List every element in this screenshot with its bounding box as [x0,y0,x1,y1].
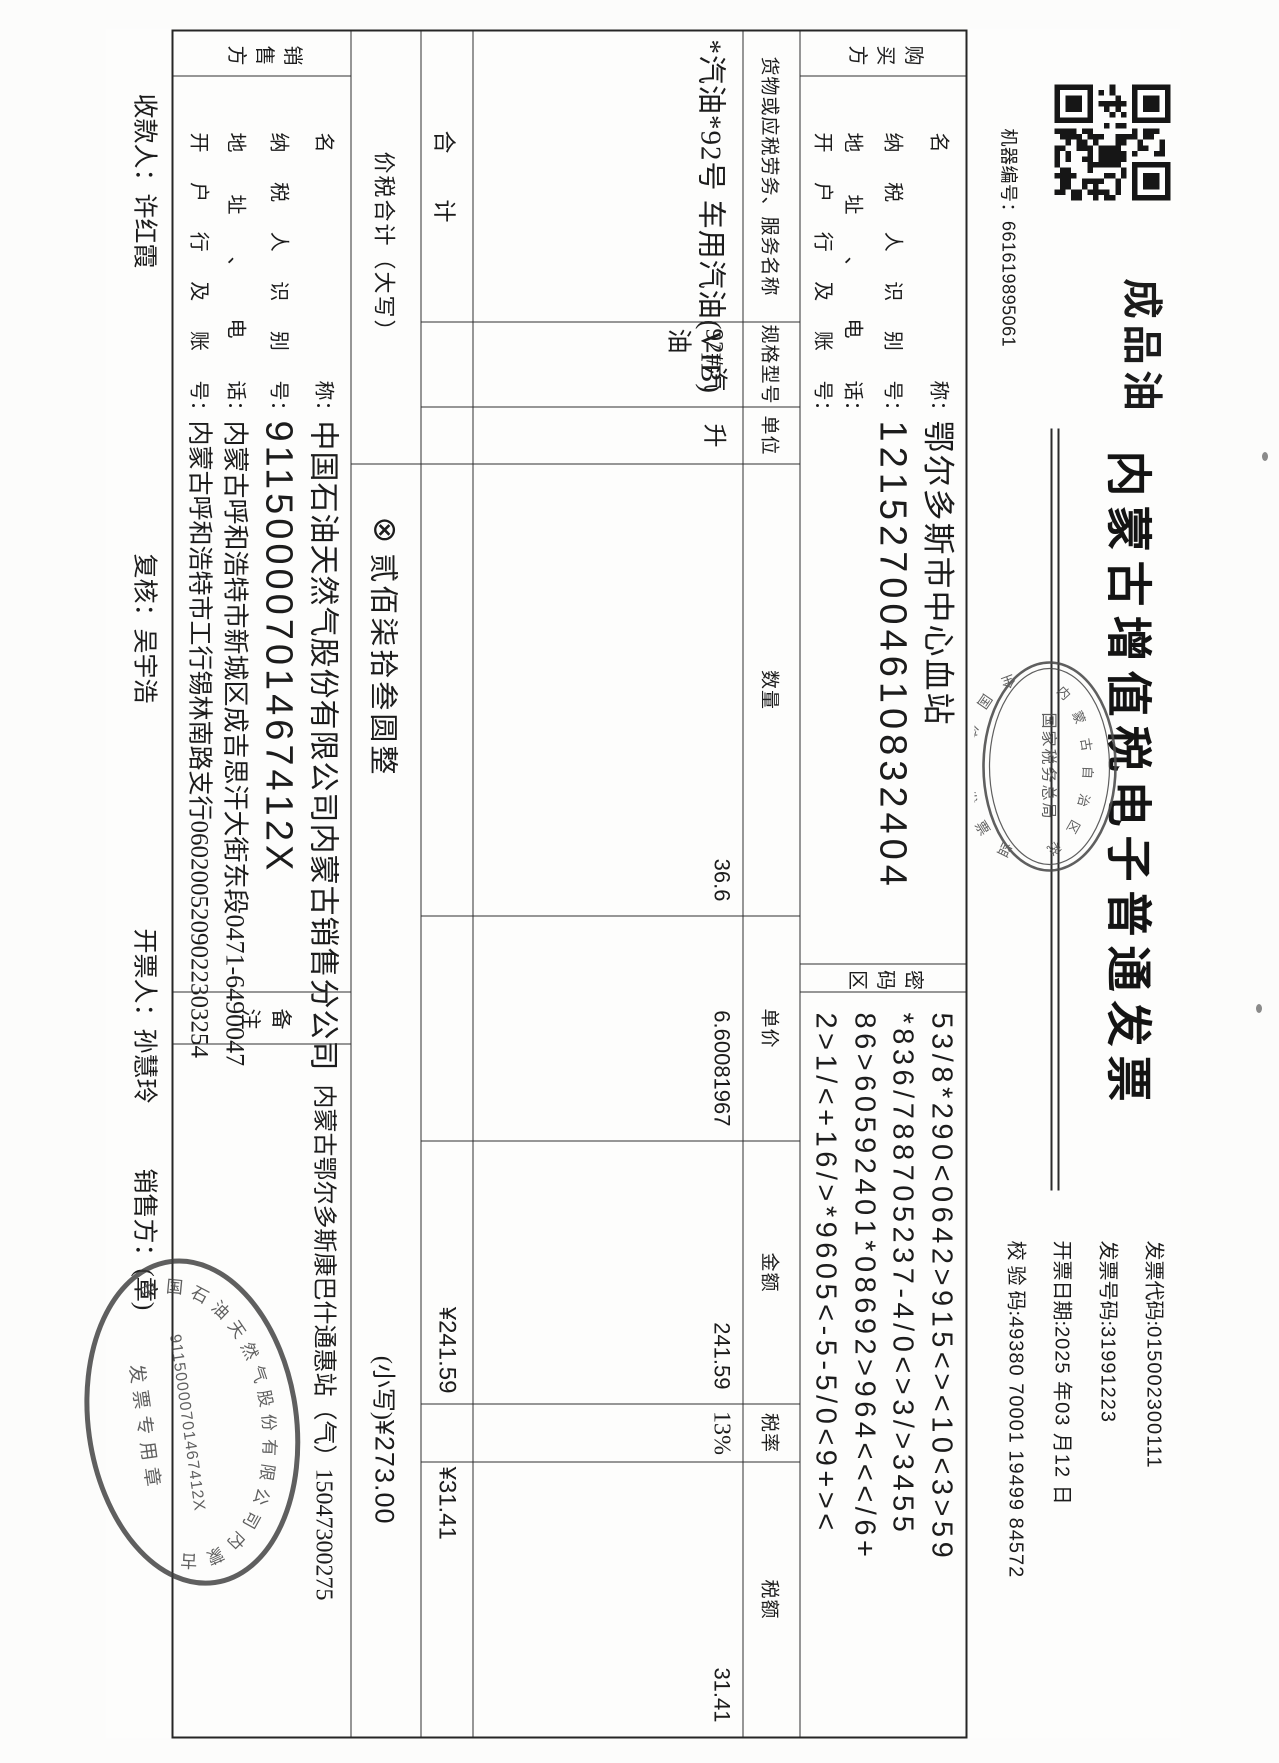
buyer-info-cell: 名称：鄂尔多斯市中心血站 纳税人识别号：121527004610832404 地… [801,76,966,964]
grand-total-label: 价税合计（大写） [352,32,421,464]
buyer-name-line: 名称：鄂尔多斯市中心血站 [921,133,955,958]
svg-text:内蒙古自治区税务局: 内蒙古自治区税务局 [1045,654,1125,859]
col-header-spec: 规格型号 [744,322,800,407]
item-unit: 升 [474,407,743,464]
buyer-address-line: 地址、电话： [842,133,863,958]
seller-bank-value: 内蒙古呼和浩特市工行锡林南路支行0602005209022303254 [185,421,211,1059]
password-line: *836/788705237-4/0<>3/>3455 [886,1013,919,1733]
invoice-date-label: 开票日期: [1051,1241,1073,1327]
company-seal-type: 发票专用章 [125,1363,165,1495]
password-line: 53/8*290<0642>915<><10<3>59 [925,1013,958,1733]
items-header-row: 货物或应税劳务、服务名称 规格型号 单位 数量 单价 金额 税率 税额 [744,32,801,1737]
invoice-number-label: 发票号码: [1097,1241,1119,1327]
invoice-date-line: 开票日期:2025 年03 月12 日 [1039,1241,1085,1579]
drawer-label: 开票人： [131,929,158,1029]
drawer-value: 孙慧玲 [131,1029,158,1104]
seller-name-line: 名称：中国石油天然气股份有限公司内蒙古销售分公司 [307,133,339,986]
payee-value: 许红霞 [131,194,158,269]
buyer-taxid-label: 纳税人识别号 [881,133,902,401]
buyer-taxid-line: 纳税人识别号：121527004610832404 [872,133,912,958]
scan-artifact [1262,452,1268,461]
totals-empty [422,407,473,464]
item-amount: 241.59 [474,1141,743,1404]
seller-taxid-line: 纳税人识别号：91150000701467412X [258,133,298,986]
totals-empty [422,916,473,1141]
colon: ： [224,401,245,421]
invoice-meta-block: 发票代码:015002300111 发票号码:31991223 开票日期:202… [993,1241,1177,1579]
seller-bank-line: 开户行及账号：内蒙古呼和浩特市工行锡林南路支行06020052090223032… [185,133,211,986]
buyer-name-value: 鄂尔多斯市中心血站 [921,421,955,727]
item-qty: 36.6 [474,464,743,916]
payee-label: 收款人： [131,94,158,194]
invoice-code-value: 015002300111 [1143,1326,1165,1469]
buyer-taxid-value: 121527004610832404 [872,421,912,891]
buyer-address-label: 地址、电话 [842,133,863,401]
col-header-rate: 税率 [744,1404,800,1462]
company-seal-taxid: 91150000701467412X [166,1333,208,1512]
machine-number-line: 机器编号：661619895061 [997,129,1023,348]
item-spec: 92#汽油 [474,322,743,407]
anti-fraud-symbol-icon: ⊗ [370,517,402,544]
invoice-code-label: 发票代码: [1143,1241,1165,1327]
drawer-line: 开票人：孙慧玲 [129,929,165,1104]
colon: ： [267,401,288,421]
buyer-name-label: 名称 [927,133,948,401]
colon: ： [812,401,833,421]
payee-line: 收款人：许红霞 [129,94,165,269]
small-figures-label: (小写) [370,1356,396,1420]
amount-in-figures: ¥273.00 [370,1420,400,1525]
fuel-type-mark: 成品油 [1117,279,1175,417]
col-header-unit: 单位 [744,407,800,464]
amount-in-figures-group: (小写)¥273.00 [369,1356,404,1525]
password-line: 86>60592401*08692>964<<</6+ [847,1013,880,1733]
seller-address-label: 地址、电话 [224,133,245,401]
item-tax-rate: 13% [474,1404,743,1462]
invoice-date-value: 2025 年03 月12 日 [1051,1326,1073,1506]
col-header-amount: 金额 [744,1141,800,1404]
invoice-sheet: 机器编号：661619895061 成品油 内蒙古增值税电子普通发票 发票代码:… [106,29,1181,1739]
company-invoice-seal: 中国石油天然气股份有限公司内蒙古销售分公司 91150000701467412X… [50,1236,330,1611]
tax-supervision-seal: 全国统一发票监制章 国家税务总局 内蒙古自治区税务局 [975,654,1125,880]
seller-bank-label: 开户行及账号 [188,133,209,401]
invoice-code-line: 发票代码:015002300111 [1131,1241,1177,1579]
scanned-invoice-page: 机器编号：661619895061 成品油 内蒙古增值税电子普通发票 发票代码:… [0,0,1279,1763]
item-price: 6.60081967 [474,916,743,1141]
password-side-label: 密码区 [801,964,966,992]
seller-address-value: 内蒙古呼和浩特市新城区成吉思汗大街东段0471-6490047 [221,421,248,1067]
scan-artifact [1256,1004,1262,1013]
buyer-bank-line: 开户行及账号： [812,133,833,958]
colon: ： [927,401,948,421]
password-line: 2>1/<+16/>*9605<-5-5/0<9+>< [808,1013,841,1733]
invoice-number-line: 发票号码:31991223 [1085,1241,1131,1579]
colon: ： [313,401,334,421]
seller-name-value: 中国石油天然气股份有限公司内蒙古销售分公司 [307,421,339,1072]
colon: ： [188,401,209,421]
qr-code [1055,85,1171,201]
totals-empty [422,322,473,407]
seal-center-text: 国家税务总局 [1040,712,1058,820]
totals-amount: ¥241.59 [422,1141,473,1404]
item-row: *汽油*92号 车用汽油(VIB) 92#汽油 升 36.6 6.6008196… [474,32,744,1737]
buyer-bank-label: 开户行及账号 [812,133,833,401]
machine-number-value: 661619895061 [999,221,1019,347]
seller-taxid-label: 纳税人识别号 [267,133,288,401]
checksum-line: 校 验 码:49380 70001 19499 84572 [993,1241,1039,1579]
machine-number-label: 机器编号： [999,129,1019,222]
buyer-side-label: 购买方 [801,32,966,76]
qr-code-svg [1055,85,1171,201]
col-header-price: 单价 [744,916,800,1141]
buyer-row: 购买方 名称：鄂尔多斯市中心血站 纳税人识别号：1215270046108324… [801,32,966,1737]
totals-row: 合 计 ¥241.59 ¥31.41 [422,32,474,1737]
seller-taxid-value: 91150000701467412X [258,421,298,875]
totals-empty [422,1404,473,1462]
item-name: *汽油*92号 车用汽油(VIB) [474,32,743,322]
colon: ： [881,401,902,421]
seller-address-line: 地址、电话：内蒙古呼和浩特市新城区成吉思汗大街东段0471-6490047 [221,133,248,986]
seller-name-label: 名称 [313,133,334,401]
reviewer-line: 复核：吴宇浩 [129,554,165,704]
grand-total-row: 价税合计（大写） ⊗ 贰佰柒拾叁圆整 (小写)¥273.00 [352,32,422,1737]
invoice-number-value: 31991223 [1097,1326,1119,1423]
col-header-tax: 税额 [744,1462,800,1737]
totals-empty [422,464,473,916]
grand-total-cell: ⊗ 贰佰柒拾叁圆整 (小写)¥273.00 [352,464,421,1737]
col-header-name: 货物或应税劳务、服务名称 [744,32,800,322]
item-tax: 31.41 [474,1462,743,1737]
seller-side-label: 销售方 [174,32,351,76]
checksum-value: 49380 70001 19499 84572 [1005,1316,1027,1578]
seal-arc-bottom-text: 内蒙古自治区税务局 [1045,654,1125,859]
seller-info-cell: 名称：中国石油天然气股份有限公司内蒙古销售分公司 纳税人识别号：91150000… [174,76,351,992]
totals-label: 合 计 [422,32,473,322]
reviewer-value: 吴宇浩 [131,629,158,704]
totals-tax: ¥31.41 [422,1462,473,1737]
reviewer-label: 复核： [131,554,158,629]
colon: ： [842,401,863,421]
remark-side-label: 备注 [174,992,351,1044]
checksum-label: 校 验 码: [1005,1241,1027,1317]
password-area-cell: 53/8*290<0642>915<><10<3>59 *836/7887052… [801,992,966,1737]
amount-in-words: 贰佰柒拾叁圆整 [365,553,407,777]
col-header-qty: 数量 [744,464,800,916]
